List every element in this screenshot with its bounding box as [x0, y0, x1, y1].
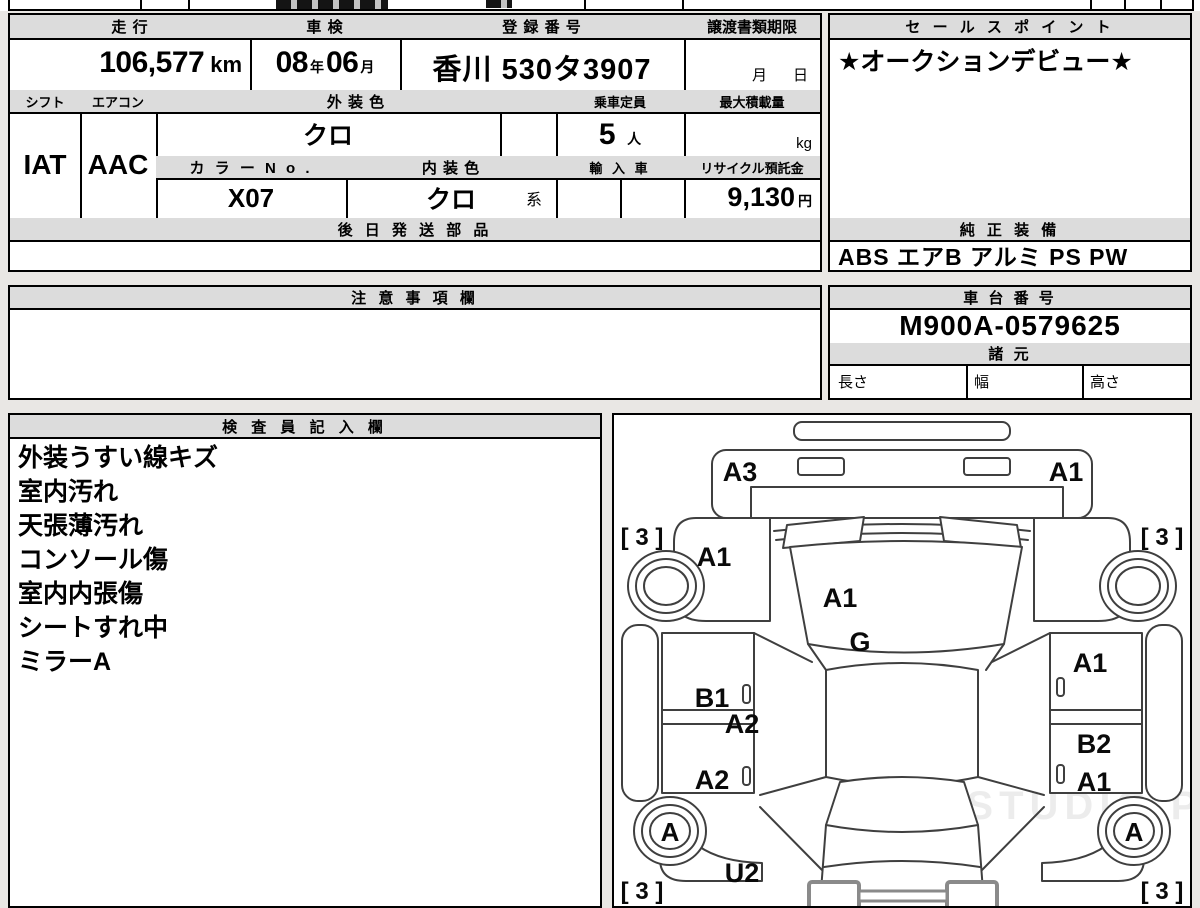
inspector-note-line: 外装うすい線キズ	[18, 441, 592, 475]
panel-front-left-label: A3	[723, 457, 758, 487]
sales-point-value: ★オークションデビュー★	[830, 38, 1190, 220]
left-rear-fender-label: U2	[725, 858, 760, 888]
length-cell: 長さ	[830, 364, 968, 398]
interior-color-text: クロ	[426, 180, 476, 216]
interior-color-value: クロ 系	[346, 178, 558, 220]
inspector-note-line: ミラーA	[18, 645, 592, 679]
recycle-amount: 9,130	[727, 182, 795, 213]
later-parts-header: 後 日 発 送 部 品	[10, 218, 820, 242]
caution-notes-block: 注 意 事 項 欄	[8, 285, 822, 400]
tire-front-left-label: [ 3 ]	[621, 524, 664, 551]
import-header: 輸 入 車	[556, 156, 686, 180]
caution-notes-header: 注 意 事 項 欄	[10, 287, 820, 310]
max-load-unit: kg	[796, 135, 812, 152]
mileage-value: 106,577 km	[10, 38, 252, 92]
chassis-number-value: M900A-0579625	[830, 308, 1190, 345]
capacity-unit: 人	[627, 129, 641, 149]
inspection-year: 08	[276, 46, 308, 80]
shift-header: シフト	[10, 90, 82, 114]
transfer-deadline-value: 月 日	[684, 38, 820, 92]
sales-point-header: セ ー ル ス ポ イ ン ト	[830, 15, 1190, 40]
left-front-fender-label: A1	[697, 542, 732, 572]
color-no-header: カ ラ ー N o .	[156, 156, 348, 180]
rear-glass-shape	[826, 777, 978, 832]
import-cell-2	[620, 178, 686, 220]
right-rear-door-label: B2	[1077, 729, 1112, 759]
right-front-door-label: A1	[1073, 648, 1108, 678]
chassis-number-header: 車 台 番 号	[830, 287, 1190, 310]
vehicle-info-table: 走 行 車 検 登 録 番 号 譲渡書類期限 106,577 km 08 年 0…	[8, 13, 822, 272]
transfer-month-label: 月	[752, 64, 767, 85]
transfer-day-label: 日	[793, 64, 808, 85]
front-wheel-right	[1100, 551, 1176, 621]
capacity-number: 5	[599, 118, 615, 152]
height-cell: 高さ	[1082, 364, 1190, 398]
inspector-note-line: 室内汚れ	[18, 475, 592, 509]
left-rear-door-label: A2	[695, 765, 730, 795]
capacity-value: 5 人	[556, 112, 686, 158]
aircon-header: エアコン	[80, 90, 158, 114]
inspector-note-line: コンソール傷	[18, 543, 592, 577]
top-partial-row	[0, 0, 1200, 11]
registration-value: 香川 530タ3907	[400, 38, 686, 92]
exterior-color-header: 外 装 色	[156, 90, 558, 114]
inspection-month: 06	[326, 46, 358, 80]
cutoff-text-fragment	[486, 0, 512, 8]
inspection-value: 08 年 06 月	[250, 38, 402, 92]
front-wheel-left	[628, 551, 704, 621]
max-load-value: kg	[684, 112, 820, 158]
tire-rear-right-label: [ 3 ]	[1141, 878, 1184, 905]
inspector-note-line: 天張薄汚れ	[18, 509, 592, 543]
inspector-note-line: 室内内張傷	[18, 577, 592, 611]
glass-label: G	[849, 627, 870, 657]
caution-notes-body	[10, 310, 820, 398]
front-panel-shape	[712, 450, 1092, 518]
chassis-block: 車 台 番 号 M900A-0579625 諸 元 長さ 幅 高さ	[828, 285, 1192, 400]
recycle-deposit-header: リサイクル預託金	[684, 156, 820, 180]
mileage-unit: km	[210, 52, 242, 78]
rear-bumper-right-piece	[947, 882, 997, 906]
year-suffix: 年	[310, 57, 324, 77]
tire-front-right-label: [ 3 ]	[1141, 524, 1184, 551]
interior-color-suffix: 系	[526, 186, 542, 210]
panel-front-right-label: A1	[1049, 457, 1084, 487]
import-cell-1	[556, 178, 622, 220]
hood-label: A1	[823, 583, 858, 613]
interior-color-header: 内 装 色	[346, 156, 558, 180]
later-parts-value	[10, 240, 820, 270]
recycle-unit: 円	[798, 191, 812, 211]
month-suffix: 月	[360, 57, 374, 77]
right-sill-shape	[1146, 625, 1182, 801]
rear-wheel-left-label: A	[661, 817, 680, 847]
transfer-deadline-header: 譲渡書類期限	[684, 15, 820, 40]
roof-shape	[826, 663, 978, 785]
width-cell: 幅	[966, 364, 1084, 398]
car-damage-diagram: WEB STUDIO.PRO	[612, 413, 1192, 908]
exterior-color-value: クロ	[156, 112, 502, 158]
color-no-value: X07	[156, 178, 348, 220]
exterior-color-sub-cell	[500, 112, 558, 158]
inspection-header: 車 検	[250, 15, 402, 40]
aircon-value: AAC	[80, 112, 158, 220]
auction-sheet: { "info": { "headers": { "mileage": "走 行…	[0, 0, 1200, 900]
right-rear-quarter-label: A1	[1077, 767, 1112, 797]
sales-point-block: セ ー ル ス ポ イ ン ト ★オークションデビュー★ 純 正 装 備 ABS…	[828, 13, 1192, 272]
rear-bumper-left-piece	[809, 882, 859, 906]
car-diagram-svg: WEB STUDIO.PRO	[614, 415, 1190, 906]
left-door-mid-label: A2	[725, 709, 760, 739]
oem-equipment-value: ABS エアB アルミ PS PW	[830, 240, 1190, 270]
inspector-notes-block: 検 査 員 記 入 欄 外装うすい線キズ 室内汚れ 天張薄汚れ コンソール傷 室…	[8, 413, 602, 908]
max-load-header: 最大積載量	[684, 90, 820, 114]
recycle-deposit-value: 9,130 円	[684, 178, 820, 220]
oem-equipment-header: 純 正 装 備	[830, 218, 1190, 242]
cutoff-text-fragment	[276, 0, 388, 9]
capacity-header: 乗車定員	[556, 90, 686, 114]
inspector-notes-body: 外装うすい線キズ 室内汚れ 天張薄汚れ コンソール傷 室内内張傷 シートすれ中 …	[10, 439, 600, 899]
trunk-arc	[824, 861, 980, 867]
mileage-number: 106,577	[99, 46, 204, 80]
mileage-header: 走 行	[10, 15, 252, 40]
inspector-notes-header: 検 査 員 記 入 欄	[10, 415, 600, 439]
registration-header: 登 録 番 号	[400, 15, 686, 40]
left-sill-shape	[622, 625, 658, 801]
shift-value: IAT	[10, 112, 82, 220]
specs-header: 諸 元	[830, 343, 1190, 366]
tire-rear-left-label: [ 3 ]	[621, 878, 664, 905]
front-bumper-shape	[794, 422, 1010, 440]
rear-wheel-right-label: A	[1125, 817, 1144, 847]
inspector-note-line: シートすれ中	[18, 611, 592, 645]
